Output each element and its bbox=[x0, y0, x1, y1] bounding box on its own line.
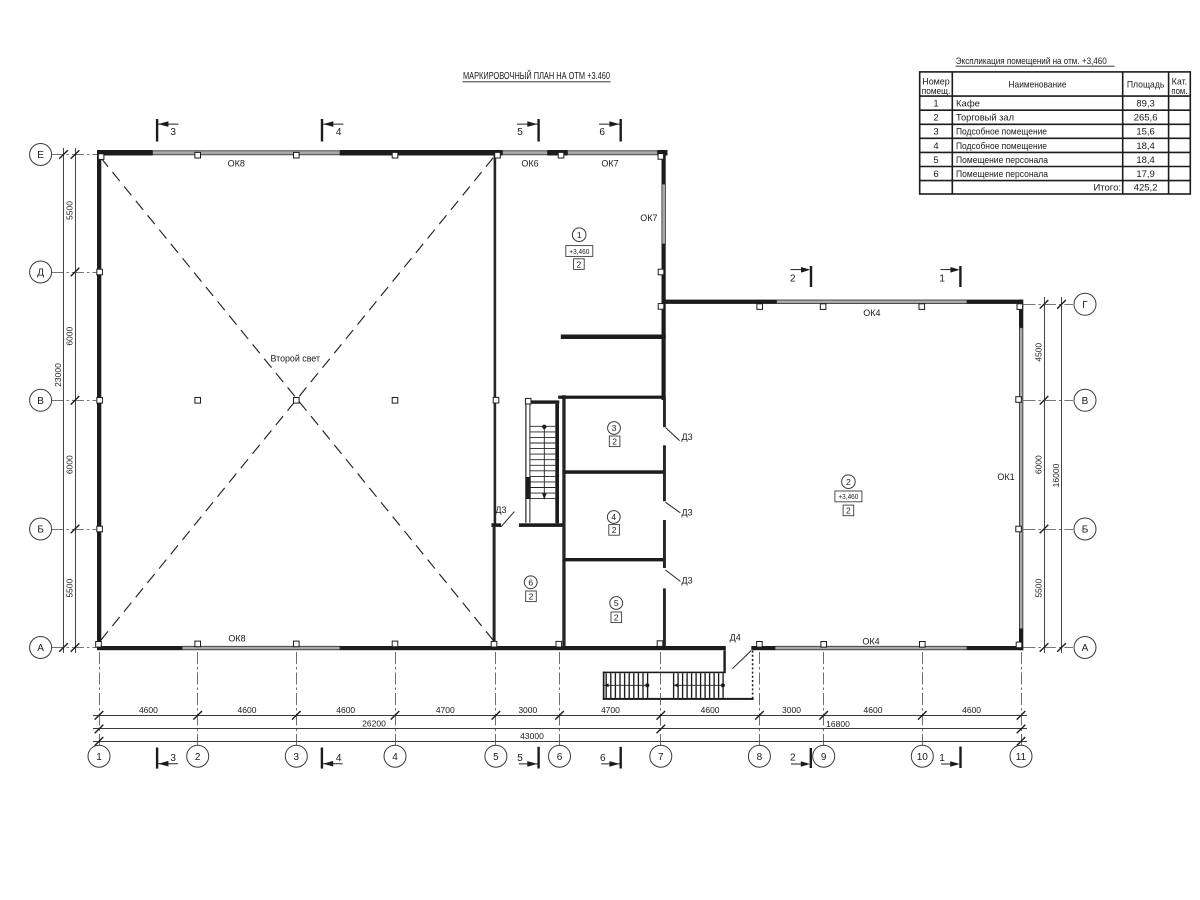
svg-text:пом.: пом. bbox=[1171, 86, 1187, 97]
svg-text:1: 1 bbox=[96, 752, 102, 763]
svg-text:5500: 5500 bbox=[65, 201, 75, 220]
svg-text:Б: Б bbox=[37, 525, 44, 536]
svg-text:17,9: 17,9 bbox=[1136, 169, 1155, 180]
svg-text:6: 6 bbox=[600, 753, 606, 764]
svg-text:4600: 4600 bbox=[336, 705, 355, 715]
svg-text:5: 5 bbox=[517, 753, 523, 764]
svg-text:4600: 4600 bbox=[864, 705, 883, 715]
svg-text:2: 2 bbox=[846, 506, 851, 516]
svg-text:2: 2 bbox=[846, 477, 851, 487]
svg-text:ОК8: ОК8 bbox=[228, 158, 245, 168]
svg-text:4600: 4600 bbox=[701, 705, 720, 715]
svg-text:ОК7: ОК7 bbox=[640, 213, 657, 223]
svg-text:ОК1: ОК1 bbox=[997, 472, 1014, 482]
svg-text:В: В bbox=[1082, 396, 1089, 407]
svg-text:помещ.: помещ. bbox=[922, 86, 951, 97]
svg-text:4600: 4600 bbox=[238, 705, 257, 715]
svg-text:+3,460: +3,460 bbox=[569, 247, 589, 256]
svg-text:9: 9 bbox=[821, 752, 827, 763]
svg-text:2: 2 bbox=[790, 753, 796, 764]
svg-text:ОК7: ОК7 bbox=[601, 158, 618, 168]
svg-text:23000: 23000 bbox=[53, 363, 63, 387]
svg-text:Наименование: Наименование bbox=[1009, 79, 1067, 90]
svg-text:5500: 5500 bbox=[65, 578, 75, 597]
svg-text:2: 2 bbox=[612, 525, 617, 535]
svg-text:4: 4 bbox=[392, 752, 398, 763]
svg-text:4: 4 bbox=[336, 753, 342, 764]
svg-text:4600: 4600 bbox=[139, 705, 158, 715]
svg-text:1: 1 bbox=[939, 273, 945, 284]
svg-text:ОК4: ОК4 bbox=[863, 308, 880, 318]
svg-text:3: 3 bbox=[933, 127, 938, 138]
svg-text:2: 2 bbox=[577, 259, 582, 269]
svg-text:1: 1 bbox=[933, 99, 938, 110]
svg-text:3000: 3000 bbox=[782, 705, 801, 715]
svg-text:Экспликация помещений на отм.: Экспликация помещений на отм. +3,460 bbox=[956, 56, 1107, 67]
svg-text:Д3: Д3 bbox=[682, 576, 693, 586]
svg-text:18,4: 18,4 bbox=[1136, 141, 1155, 152]
svg-text:5: 5 bbox=[933, 155, 938, 166]
svg-text:2: 2 bbox=[933, 113, 938, 124]
svg-text:Итого:: Итого: bbox=[1093, 183, 1121, 194]
svg-text:8: 8 bbox=[757, 752, 763, 763]
svg-text:11: 11 bbox=[1016, 752, 1027, 763]
svg-text:4: 4 bbox=[611, 512, 616, 522]
svg-text:6: 6 bbox=[933, 169, 938, 180]
svg-text:1: 1 bbox=[939, 753, 945, 764]
svg-text:Торговый зал: Торговый зал bbox=[956, 113, 1014, 124]
svg-text:Г: Г bbox=[1082, 300, 1088, 311]
svg-text:5500: 5500 bbox=[1034, 578, 1044, 597]
svg-text:3: 3 bbox=[612, 423, 617, 433]
svg-text:ОК8: ОК8 bbox=[228, 633, 245, 643]
svg-text:6: 6 bbox=[599, 127, 605, 138]
svg-text:5: 5 bbox=[517, 127, 523, 138]
svg-text:Б: Б bbox=[1082, 525, 1089, 536]
svg-text:10: 10 bbox=[917, 752, 929, 763]
svg-text:Е: Е bbox=[37, 150, 44, 161]
svg-text:4700: 4700 bbox=[436, 705, 455, 715]
svg-text:7: 7 bbox=[658, 752, 664, 763]
svg-text:ОК4: ОК4 bbox=[862, 637, 879, 647]
svg-text:3: 3 bbox=[294, 752, 300, 763]
svg-text:4: 4 bbox=[336, 127, 342, 138]
svg-text:Д3: Д3 bbox=[495, 505, 506, 515]
svg-text:6000: 6000 bbox=[65, 455, 75, 474]
svg-text:2: 2 bbox=[195, 752, 201, 763]
svg-text:А: А bbox=[1082, 643, 1089, 654]
svg-text:Площадь: Площадь bbox=[1127, 79, 1165, 90]
svg-text:Д3: Д3 bbox=[682, 508, 693, 518]
svg-text:3000: 3000 bbox=[518, 705, 537, 715]
svg-text:Д4: Д4 bbox=[730, 632, 741, 642]
svg-text:Подсобное помещение: Подсобное помещение bbox=[956, 141, 1047, 152]
svg-text:ОК6: ОК6 bbox=[521, 158, 538, 168]
svg-text:16800: 16800 bbox=[826, 719, 850, 729]
svg-text:4600: 4600 bbox=[962, 705, 981, 715]
svg-text:4: 4 bbox=[933, 141, 938, 152]
svg-text:2: 2 bbox=[612, 437, 617, 447]
svg-text:4700: 4700 bbox=[601, 705, 620, 715]
svg-text:2: 2 bbox=[529, 592, 534, 602]
svg-text:Второй свет: Второй свет bbox=[271, 354, 321, 364]
svg-text:1: 1 bbox=[577, 230, 582, 240]
svg-text:Подсобное помещение: Подсобное помещение bbox=[956, 127, 1047, 138]
svg-text:А: А bbox=[37, 643, 44, 654]
svg-text:3: 3 bbox=[170, 753, 176, 764]
svg-text:6: 6 bbox=[528, 578, 533, 588]
svg-text:6: 6 bbox=[557, 752, 563, 763]
svg-text:2: 2 bbox=[790, 273, 796, 284]
svg-text:5: 5 bbox=[493, 752, 499, 763]
svg-text:15,6: 15,6 bbox=[1136, 127, 1155, 138]
svg-text:Д: Д bbox=[37, 268, 44, 279]
svg-text:МАРКИРОВОЧНЫЙ ПЛАН НА ОТМ +3.4: МАРКИРОВОЧНЫЙ ПЛАН НА ОТМ +3.460 bbox=[463, 69, 610, 82]
svg-text:6000: 6000 bbox=[65, 326, 75, 345]
svg-text:Кафе: Кафе bbox=[956, 99, 980, 110]
svg-text:43000: 43000 bbox=[520, 731, 544, 741]
svg-text:16000: 16000 bbox=[1051, 463, 1061, 487]
svg-text:3: 3 bbox=[170, 127, 176, 138]
svg-text:425,2: 425,2 bbox=[1134, 183, 1158, 194]
svg-text:265,6: 265,6 bbox=[1134, 113, 1158, 124]
svg-text:+3,460: +3,460 bbox=[838, 492, 858, 501]
svg-text:Д3: Д3 bbox=[682, 432, 693, 442]
svg-text:4500: 4500 bbox=[1034, 343, 1044, 362]
svg-text:18,4: 18,4 bbox=[1136, 155, 1155, 166]
svg-text:Помещение персонала: Помещение персонала bbox=[956, 169, 1049, 180]
svg-text:Помещение персонала: Помещение персонала bbox=[956, 155, 1049, 166]
svg-text:В: В bbox=[37, 396, 44, 407]
svg-text:5: 5 bbox=[614, 598, 619, 608]
svg-text:26200: 26200 bbox=[362, 719, 386, 729]
svg-text:89,3: 89,3 bbox=[1136, 99, 1155, 110]
svg-text:2: 2 bbox=[614, 613, 619, 623]
svg-text:6000: 6000 bbox=[1034, 455, 1044, 474]
